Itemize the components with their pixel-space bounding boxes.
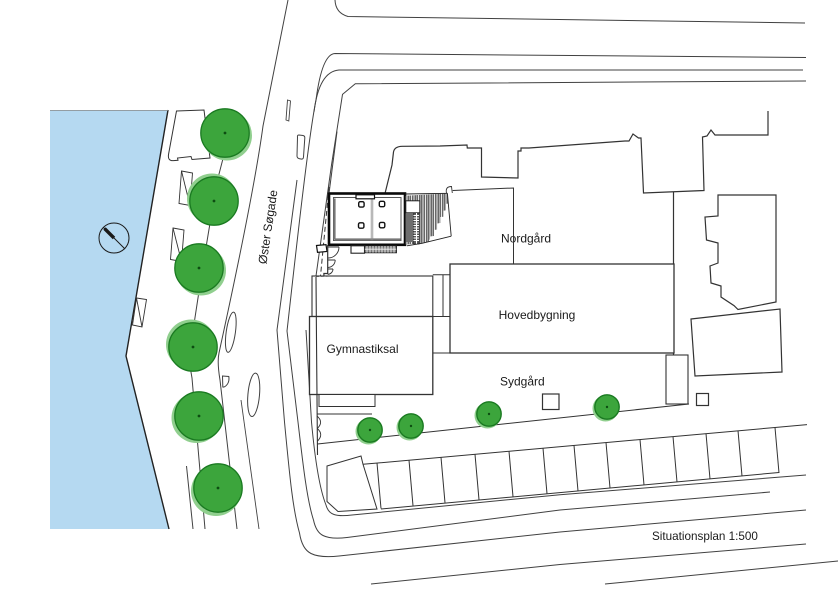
svg-text:Øster Søgade: Øster Søgade: [256, 189, 281, 265]
svg-text:Nordgård: Nordgård: [501, 232, 551, 246]
svg-text:Sydgård: Sydgård: [500, 375, 545, 389]
svg-text:Gymnastiksal: Gymnastiksal: [327, 342, 399, 356]
svg-text:Hovedbygning: Hovedbygning: [499, 308, 576, 322]
svg-text:Situationsplan 1:500: Situationsplan 1:500: [652, 530, 758, 543]
